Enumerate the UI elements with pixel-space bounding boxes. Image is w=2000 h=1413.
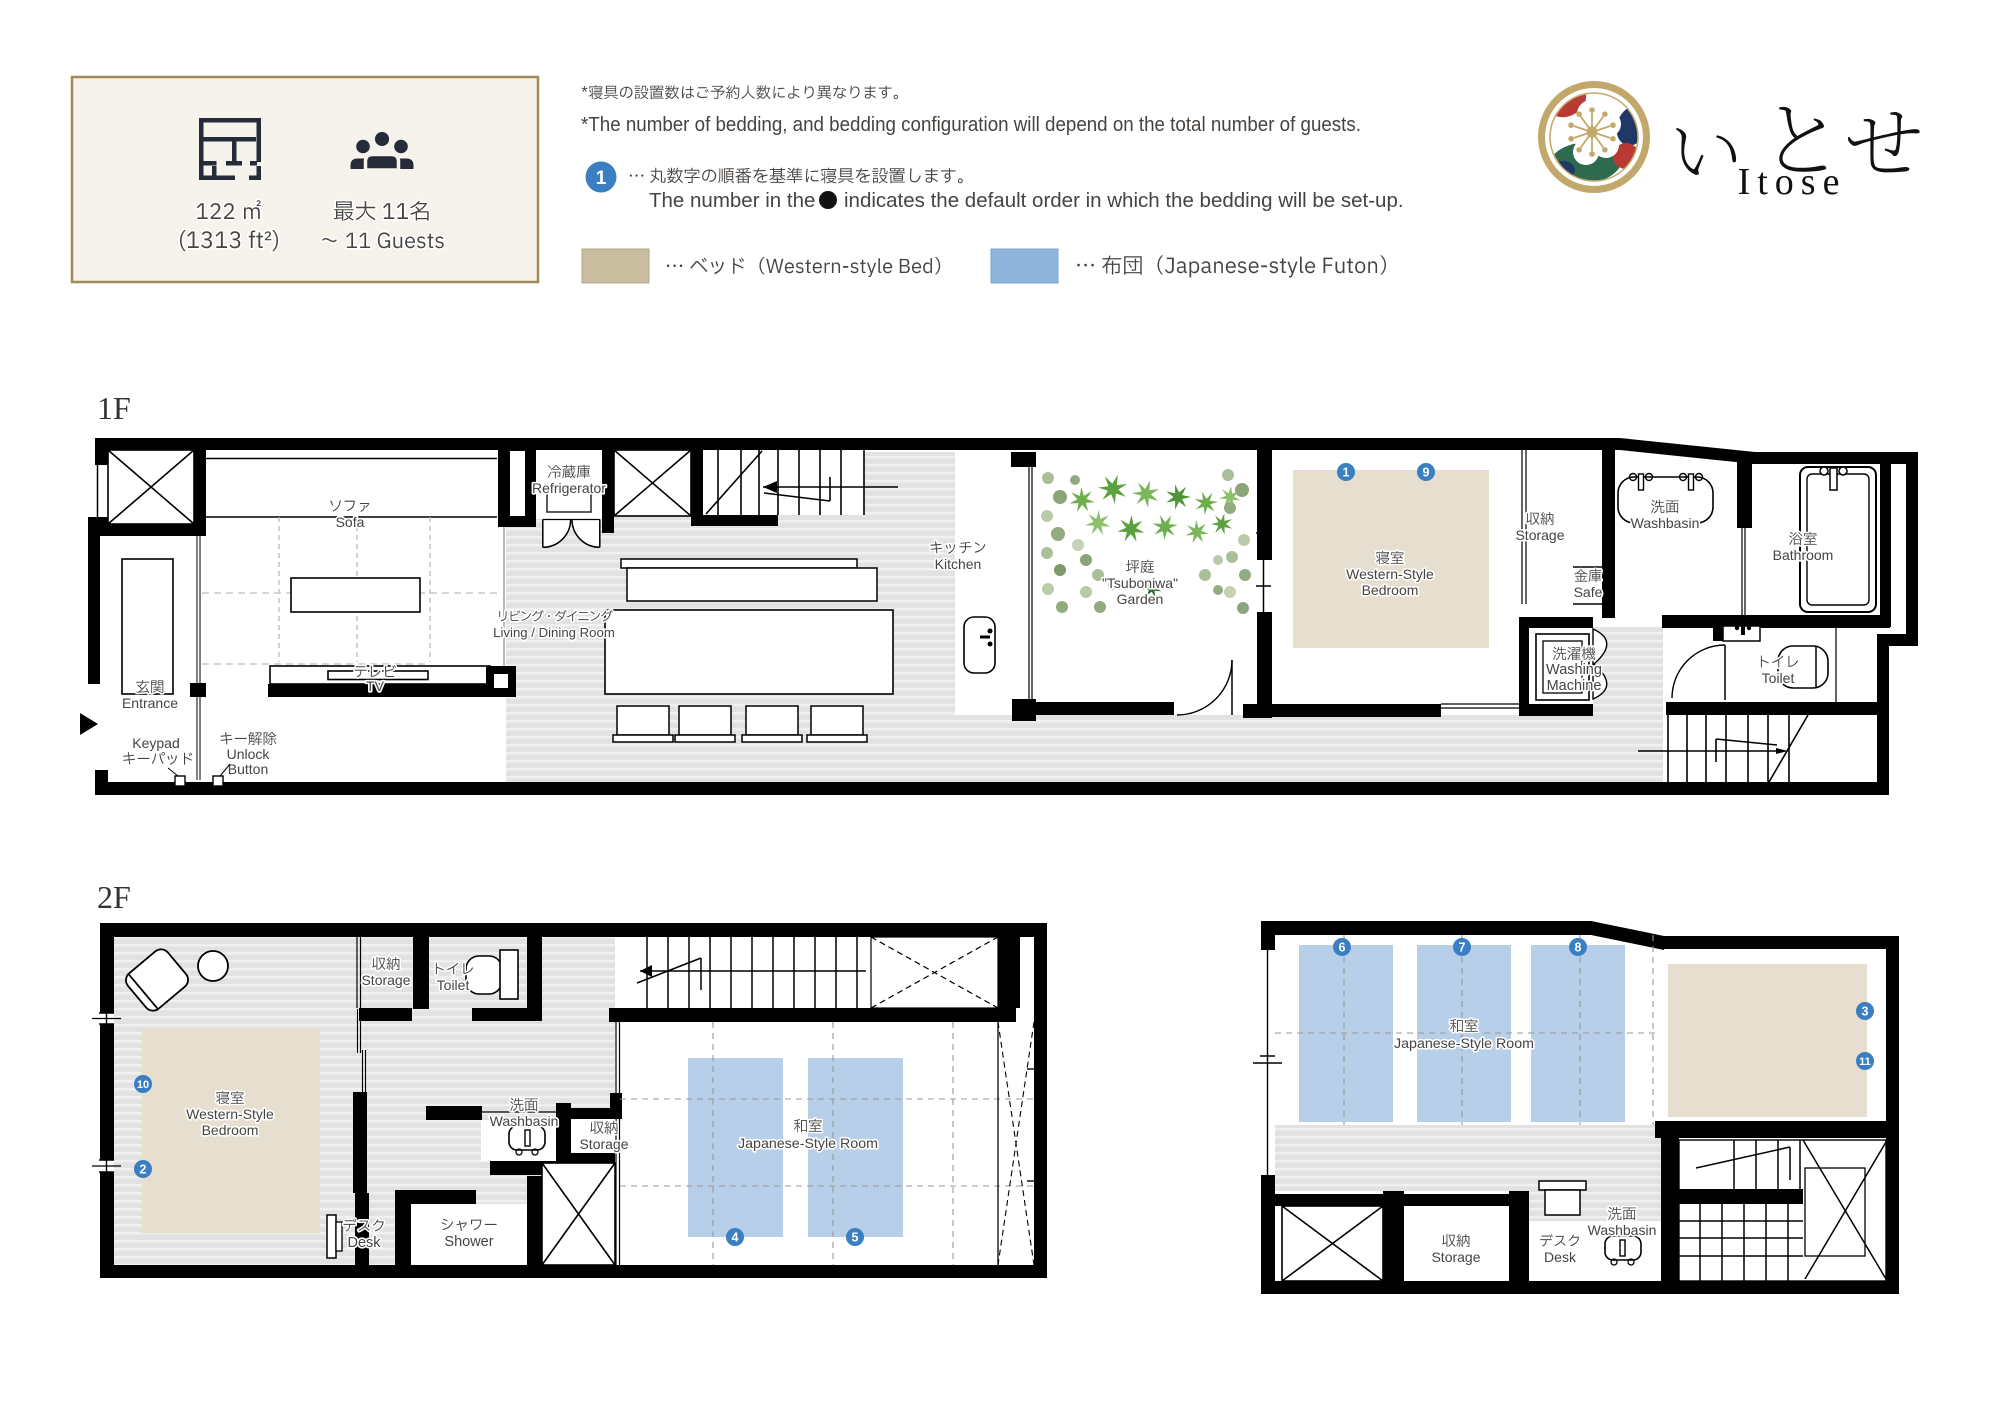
svg-text:1F: 1F — [97, 390, 131, 426]
svg-text:TV: TV — [366, 678, 385, 694]
svg-text:Machine: Machine — [1547, 678, 1602, 694]
svg-text:Refrigerator: Refrigerator — [532, 480, 606, 496]
svg-text:10: 10 — [137, 1079, 149, 1091]
svg-text:4: 4 — [732, 1230, 739, 1244]
svg-text:1: 1 — [596, 168, 607, 189]
svg-text:*The number of bedding, and be: *The number of bedding, and bedding conf… — [581, 113, 1361, 136]
svg-text:7: 7 — [1459, 940, 1466, 954]
svg-text:Japanese-Style Room: Japanese-Style Room — [1394, 1035, 1534, 1051]
svg-text:The number in the: The number in the — [649, 189, 815, 212]
svg-text:Bedroom: Bedroom — [202, 1122, 259, 1138]
svg-text:Storage: Storage — [579, 1136, 628, 1152]
svg-text:Bathroom: Bathroom — [1773, 547, 1834, 563]
svg-text:Itose: Itose — [1738, 161, 1847, 203]
svg-text:Garden: Garden — [1117, 591, 1164, 607]
svg-text:Desk: Desk — [1544, 1249, 1577, 1265]
svg-text:Japanese-Style Room: Japanese-Style Room — [738, 1135, 878, 1151]
svg-text:8: 8 — [1575, 940, 1582, 954]
svg-text:Western-Style: Western-Style — [1346, 566, 1434, 582]
svg-text:indicates the default order in: indicates the default order in which the… — [844, 189, 1404, 212]
svg-text:Sofa: Sofa — [336, 514, 365, 530]
svg-text:Storage: Storage — [1431, 1249, 1480, 1265]
svg-text:Safe: Safe — [1574, 584, 1603, 600]
svg-text:Entrance: Entrance — [122, 695, 178, 711]
svg-text:Washbasin: Washbasin — [1631, 515, 1700, 531]
svg-text:11: 11 — [1859, 1056, 1871, 1068]
svg-text:"Tsuboniwa": "Tsuboniwa" — [1102, 575, 1178, 591]
svg-text:Toilet: Toilet — [437, 977, 470, 993]
svg-text:Living / Dining Room: Living / Dining Room — [493, 625, 615, 640]
svg-text:Washbasin: Washbasin — [1588, 1222, 1657, 1238]
svg-text:9: 9 — [1423, 465, 1430, 479]
svg-text:Washing: Washing — [1546, 662, 1602, 678]
svg-text:Unlock: Unlock — [227, 746, 271, 762]
svg-text:Washbasin: Washbasin — [490, 1113, 559, 1129]
svg-text:Storage: Storage — [1515, 527, 1564, 543]
svg-text:2: 2 — [140, 1162, 147, 1176]
svg-text:5: 5 — [852, 1230, 859, 1244]
svg-text:Desk: Desk — [347, 1235, 381, 1251]
svg-text:Kitchen: Kitchen — [935, 556, 982, 572]
svg-text:Storage: Storage — [361, 972, 410, 988]
svg-text:Toilet: Toilet — [1762, 670, 1795, 686]
svg-text:2F: 2F — [97, 879, 131, 915]
svg-text:Shower: Shower — [444, 1234, 493, 1250]
svg-text:Button: Button — [228, 761, 268, 777]
svg-text:1: 1 — [1343, 465, 1350, 479]
svg-text:Western-Style: Western-Style — [186, 1106, 274, 1122]
svg-text:3: 3 — [1862, 1004, 1869, 1018]
svg-text:6: 6 — [1339, 940, 1346, 954]
svg-text:Keypad: Keypad — [132, 735, 179, 751]
svg-text:Bedroom: Bedroom — [1362, 582, 1419, 598]
